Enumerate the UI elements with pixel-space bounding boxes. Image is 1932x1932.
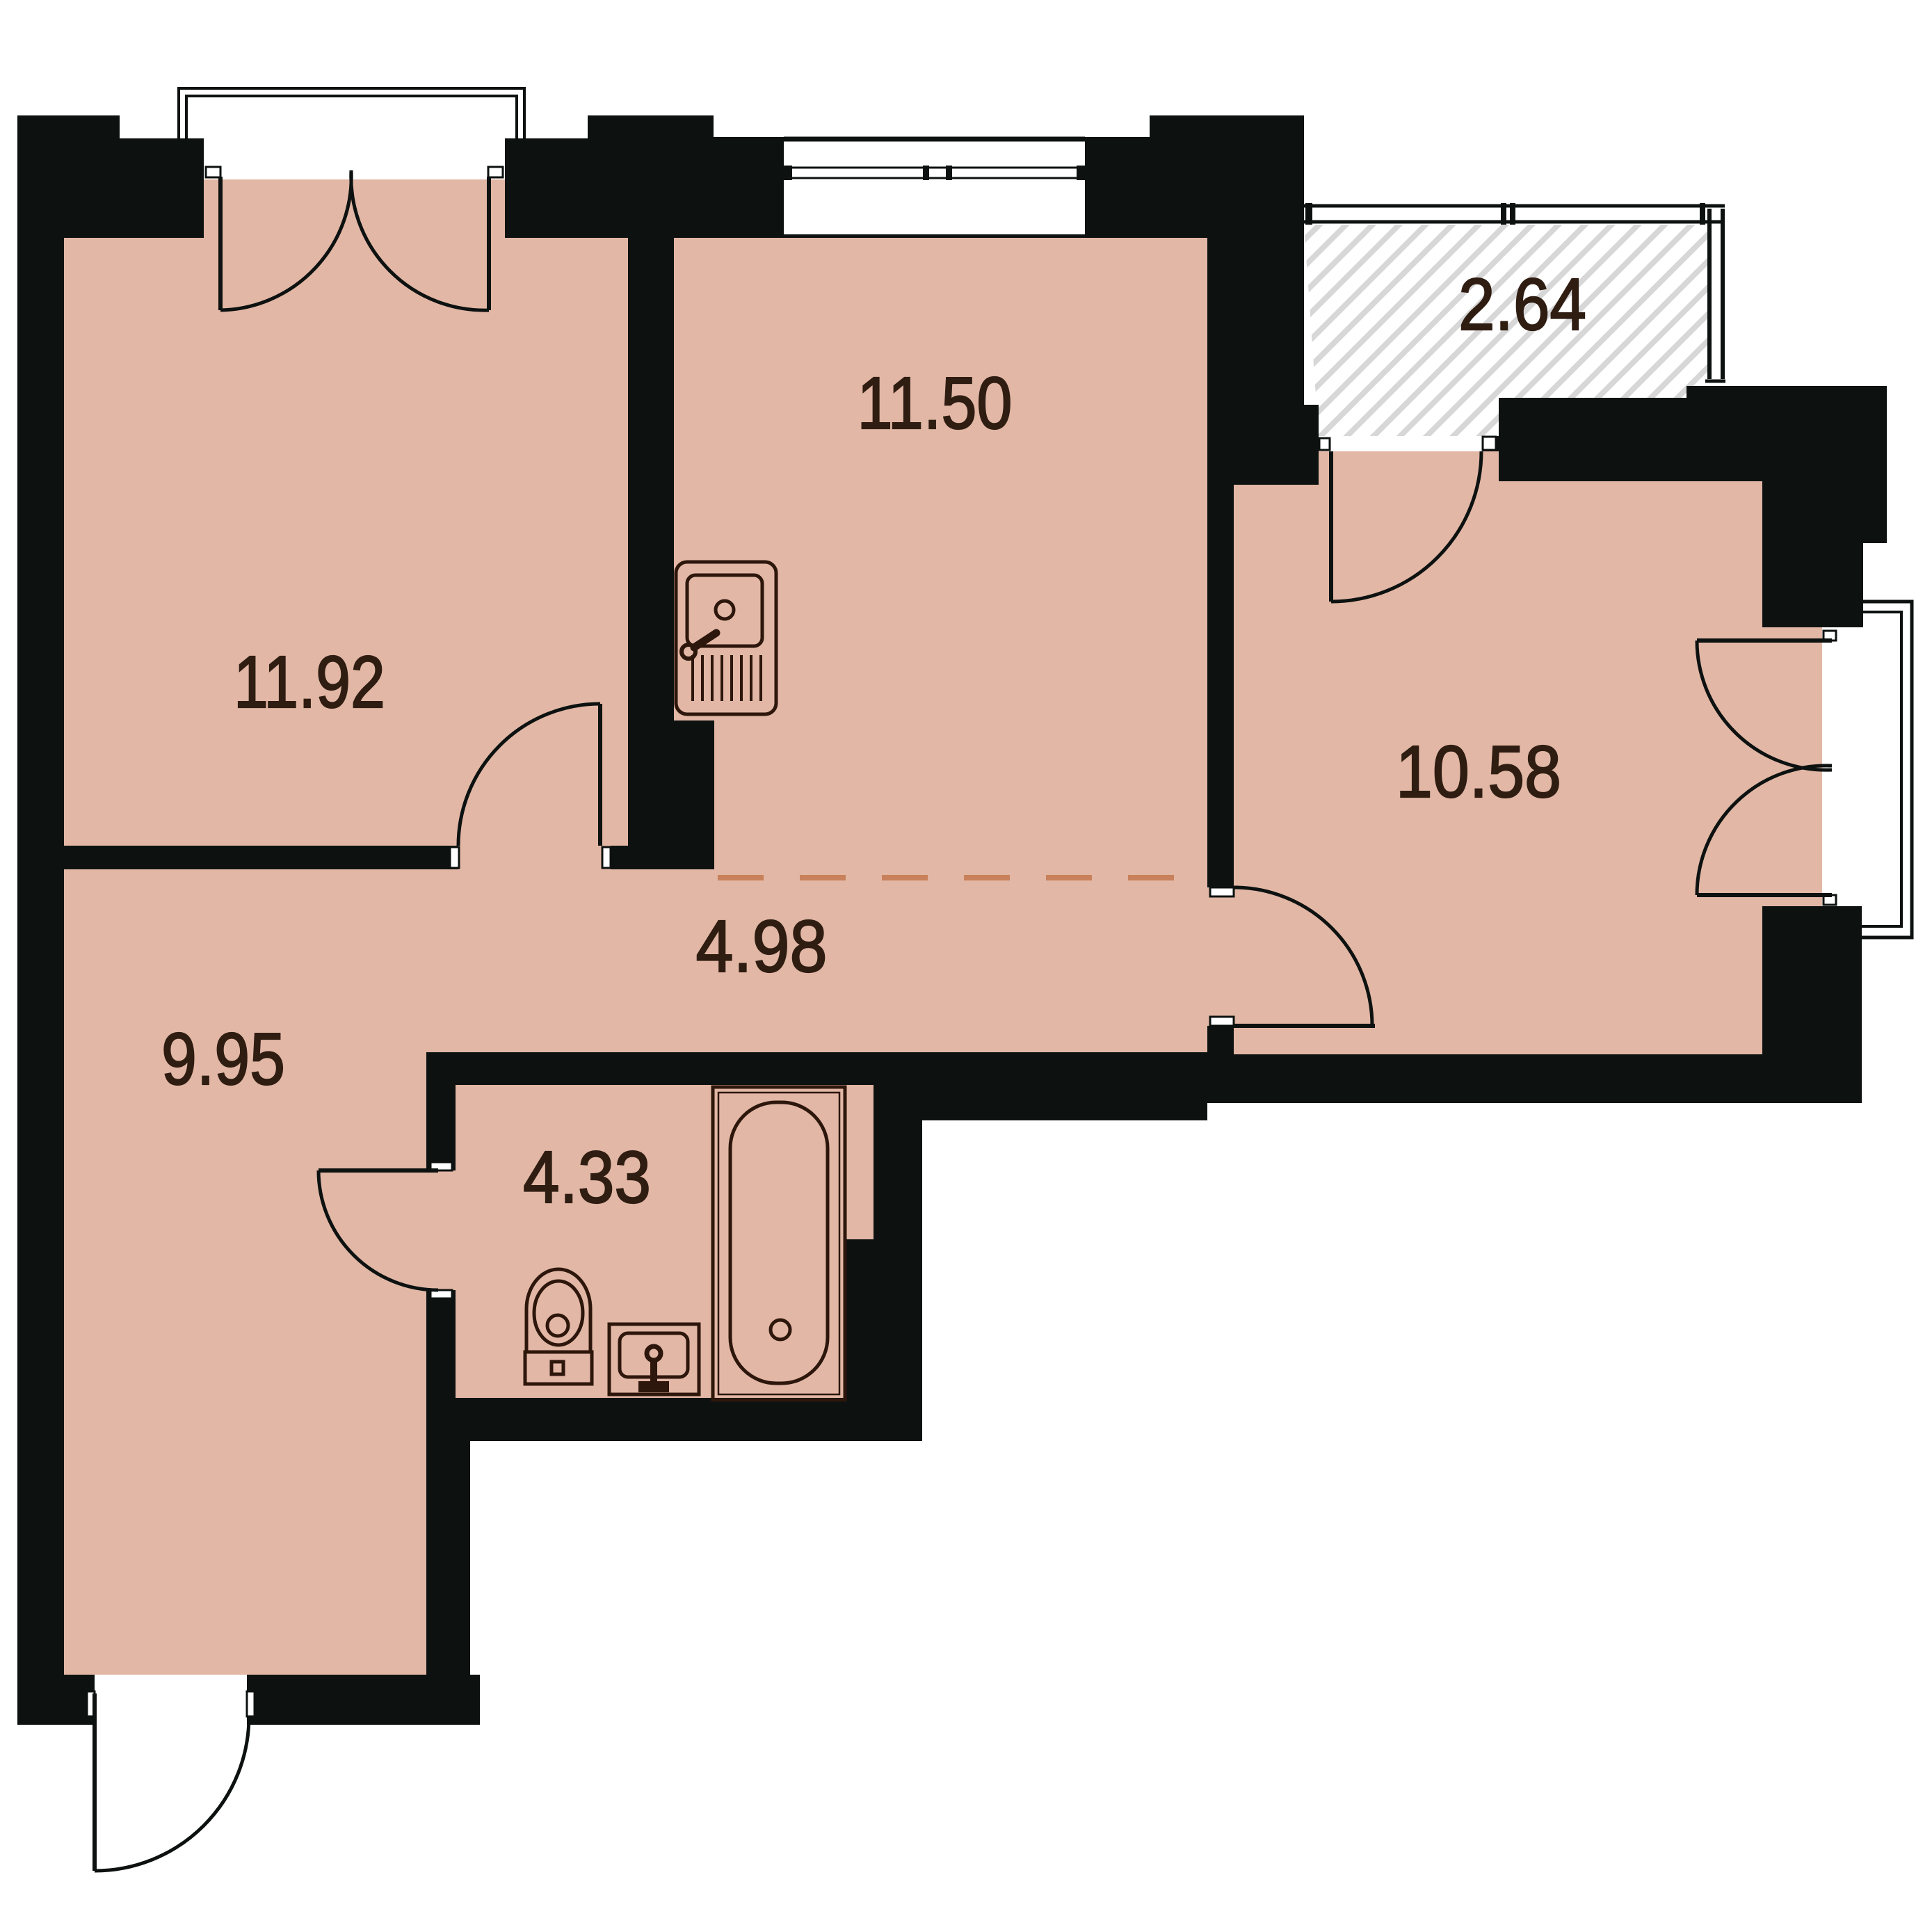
svg-text:4.33: 4.33	[523, 1136, 651, 1218]
svg-text:11.92: 11.92	[234, 641, 385, 723]
svg-text:4.98: 4.98	[696, 905, 828, 988]
svg-text:11.50: 11.50	[858, 362, 1013, 444]
svg-text:9.95: 9.95	[161, 1018, 285, 1100]
svg-text:2.64: 2.64	[1458, 264, 1586, 346]
svg-text:10.58: 10.58	[1396, 731, 1561, 813]
